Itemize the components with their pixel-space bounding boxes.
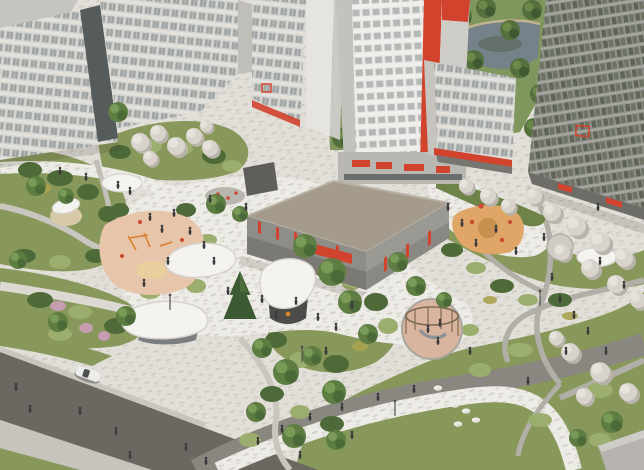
- green-tree: [406, 276, 426, 296]
- green-tree: [116, 306, 136, 326]
- green-tree: [58, 188, 74, 204]
- green-tree: [302, 346, 322, 366]
- tower-front: [352, 0, 424, 168]
- green-tree: [293, 234, 317, 258]
- base-glazing: [344, 174, 462, 180]
- green-tree: [206, 194, 226, 214]
- sand-area: [136, 261, 168, 279]
- pavilion-door: [286, 312, 291, 317]
- green-tree: [48, 312, 68, 332]
- green-tree: [326, 430, 346, 450]
- green-tree: [273, 359, 299, 385]
- slab-side: [238, 0, 252, 74]
- green-tree: [601, 411, 623, 433]
- shade-canopy: [102, 174, 142, 192]
- green-tree: [522, 0, 542, 20]
- green-tree: [252, 338, 272, 358]
- green-tree: [282, 424, 306, 448]
- green-tree: [358, 324, 378, 344]
- green-tree: [569, 429, 587, 447]
- green-tree: [322, 380, 346, 404]
- green-tree: [26, 176, 46, 196]
- right-tower-front: [528, 0, 644, 208]
- green-tree: [510, 58, 530, 78]
- mid-building: [424, 60, 516, 174]
- green-tree: [108, 102, 128, 122]
- green-tree: [318, 258, 346, 286]
- green-tree: [338, 290, 362, 314]
- green-tree: [246, 402, 266, 422]
- green-tree: [9, 251, 27, 269]
- green-tree: [388, 252, 408, 272]
- render-frame: [0, 0, 644, 470]
- white-pilaster: [306, 0, 334, 136]
- green-tree: [500, 20, 520, 40]
- courtyard-render: [0, 0, 644, 470]
- playground-rope-cage: [402, 299, 462, 359]
- garage-ramp: [243, 162, 278, 196]
- green-tree: [436, 292, 452, 308]
- red-top: [442, 0, 470, 22]
